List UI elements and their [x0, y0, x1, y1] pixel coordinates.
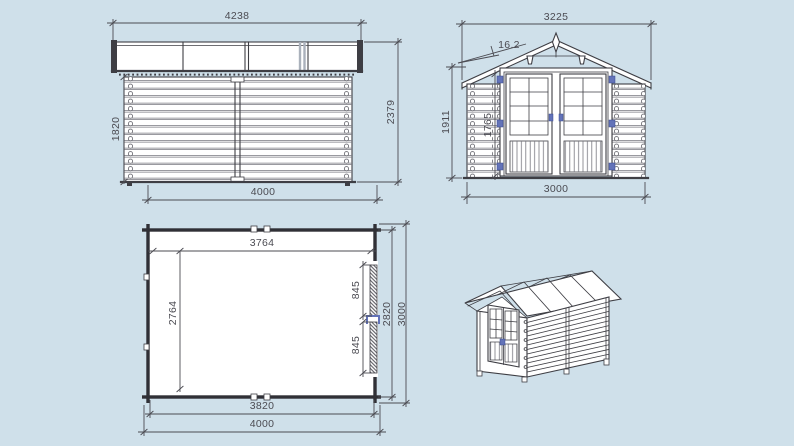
dim-label-side-wall-height: 1820	[110, 117, 122, 142]
drawing-page: 4238 1820 2379 4000	[0, 0, 794, 446]
dim-label-plan-wall-width: 3820	[250, 400, 275, 412]
dim-label-plan-wall-depth: 2820	[381, 302, 393, 327]
dim-label-side-wall-width: 4000	[251, 186, 276, 198]
hinge-marker	[497, 76, 503, 83]
dim-label-front-total-height: 1911	[440, 110, 452, 134]
side-wall-logs	[121, 77, 355, 186]
dim-label-plan-inner-width: 3764	[250, 237, 275, 249]
persp-door	[488, 305, 519, 367]
apex-finial-icon	[553, 33, 560, 57]
hinge-marker	[609, 163, 615, 170]
dim-label-plan-door-leaf-a: 845	[350, 281, 362, 299]
dim-label-side-total-height: 2379	[385, 100, 397, 125]
persp-door-handle	[500, 339, 505, 345]
plan-door-leaf-bottom	[370, 322, 377, 373]
door-handle	[559, 114, 563, 121]
door-handle	[549, 114, 553, 121]
dim-label-plan-total-depth: 3000	[396, 302, 408, 327]
dim-label-side-roof-width: 4238	[225, 10, 250, 22]
dim-label-door-height: 1765	[482, 113, 494, 138]
dim-label-roof-angle: 16.2	[498, 39, 520, 51]
gable-pendant-right	[579, 56, 585, 64]
hinge-marker	[609, 120, 615, 127]
dim-label-front-wall-width: 3000	[544, 183, 569, 195]
front-elevation-view: 3225 16.2 1911 1765 3000	[440, 11, 657, 204]
perspective-view	[465, 271, 621, 382]
dim-label-plan-door-leaf-b: 845	[350, 336, 362, 354]
gable-pendant-left	[527, 56, 533, 64]
hinge-marker	[497, 120, 503, 127]
door-left-leaf	[506, 74, 552, 174]
floor-plan-view: 3764 2764 845 845 2820 3000	[138, 220, 410, 436]
side-roof	[111, 40, 363, 75]
log-ends-right	[343, 77, 352, 182]
plan-door-leaf-top	[370, 265, 377, 316]
hinge-marker	[609, 76, 615, 83]
persp-front-wall	[477, 305, 527, 377]
front-double-door	[497, 68, 615, 176]
dim-label-front-roof-width: 3225	[544, 11, 569, 23]
door-right-leaf	[560, 74, 606, 174]
side-elevation-view: 4238 1820 2379 4000	[107, 10, 402, 204]
barge-end-right	[357, 40, 363, 73]
barge-end-left	[111, 40, 117, 73]
technical-drawing: 4238 1820 2379 4000	[0, 0, 794, 446]
dim-label-plan-total-width: 4000	[250, 418, 275, 430]
log-ends-left	[124, 77, 133, 182]
hinge-marker	[497, 163, 503, 170]
dim-label-plan-inner-depth: 2764	[167, 301, 179, 326]
